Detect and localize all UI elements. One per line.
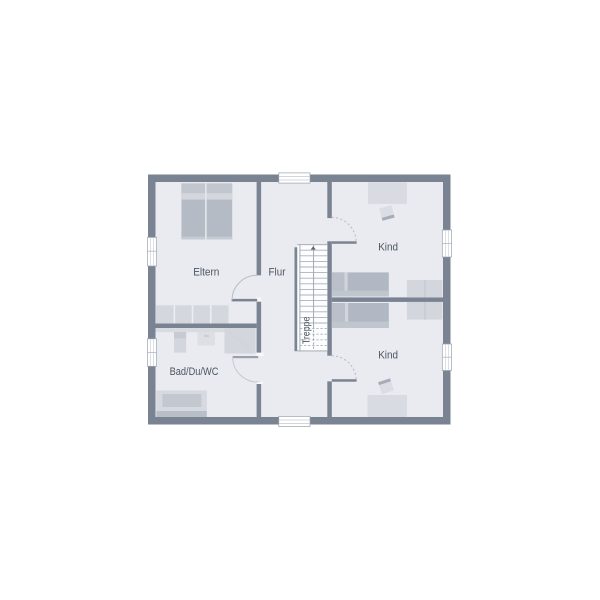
svg-text:Treppe: Treppe <box>300 317 312 345</box>
svg-text:Bad/Du/WC: Bad/Du/WC <box>170 366 219 378</box>
svg-text:Kind: Kind <box>378 350 398 362</box>
svg-text:Kind: Kind <box>378 242 398 254</box>
svg-text:Flur: Flur <box>269 267 286 279</box>
svg-text:Eltern: Eltern <box>193 267 219 279</box>
